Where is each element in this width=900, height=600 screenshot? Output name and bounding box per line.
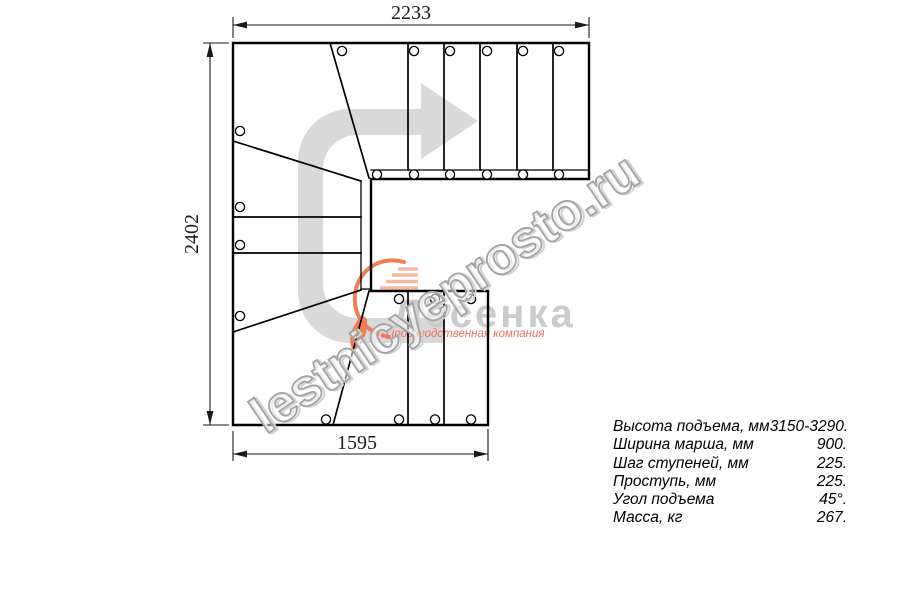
spec-label: Высота подъема, мм	[613, 418, 770, 436]
dimension-top-label: 2233	[391, 2, 431, 24]
spec-row-tread: Проступь, мм 225.	[613, 473, 847, 491]
spec-value: 900.	[817, 436, 847, 454]
spec-row-lift-height: Высота подъема, мм 3150-3290.	[613, 418, 847, 436]
dimension-bottom-label: 1595	[337, 432, 377, 454]
spec-label: Проступь, мм	[613, 473, 716, 491]
spec-label: Масса, кг	[613, 509, 682, 527]
spec-label: Ширина марша, мм	[613, 436, 754, 454]
spec-label: Угол подъема	[613, 491, 714, 509]
spec-value: 267.	[817, 509, 847, 527]
spec-row-flight-width: Ширина марша, мм 900.	[613, 436, 847, 454]
spec-row-climb-angle: Угол подъема 45°.	[613, 491, 847, 509]
spec-label: Шаг ступеней, мм	[613, 455, 749, 473]
stair-drawing-page: Лесенка Производственная компания	[0, 0, 900, 600]
left-flight-treads	[233, 141, 361, 332]
spec-value: 225.	[817, 455, 847, 473]
spec-row-step-pitch: Шаг ступеней, мм 225.	[613, 455, 847, 473]
dimension-left-label: 2402	[181, 214, 203, 254]
spec-value: 45°.	[819, 491, 847, 509]
spec-row-mass: Масса, кг 267.	[613, 509, 847, 527]
specs-table: Высота подъема, мм 3150-3290. Ширина мар…	[613, 418, 847, 528]
spec-value: 225.	[817, 473, 847, 491]
spec-value: 3150-3290.	[770, 418, 848, 436]
